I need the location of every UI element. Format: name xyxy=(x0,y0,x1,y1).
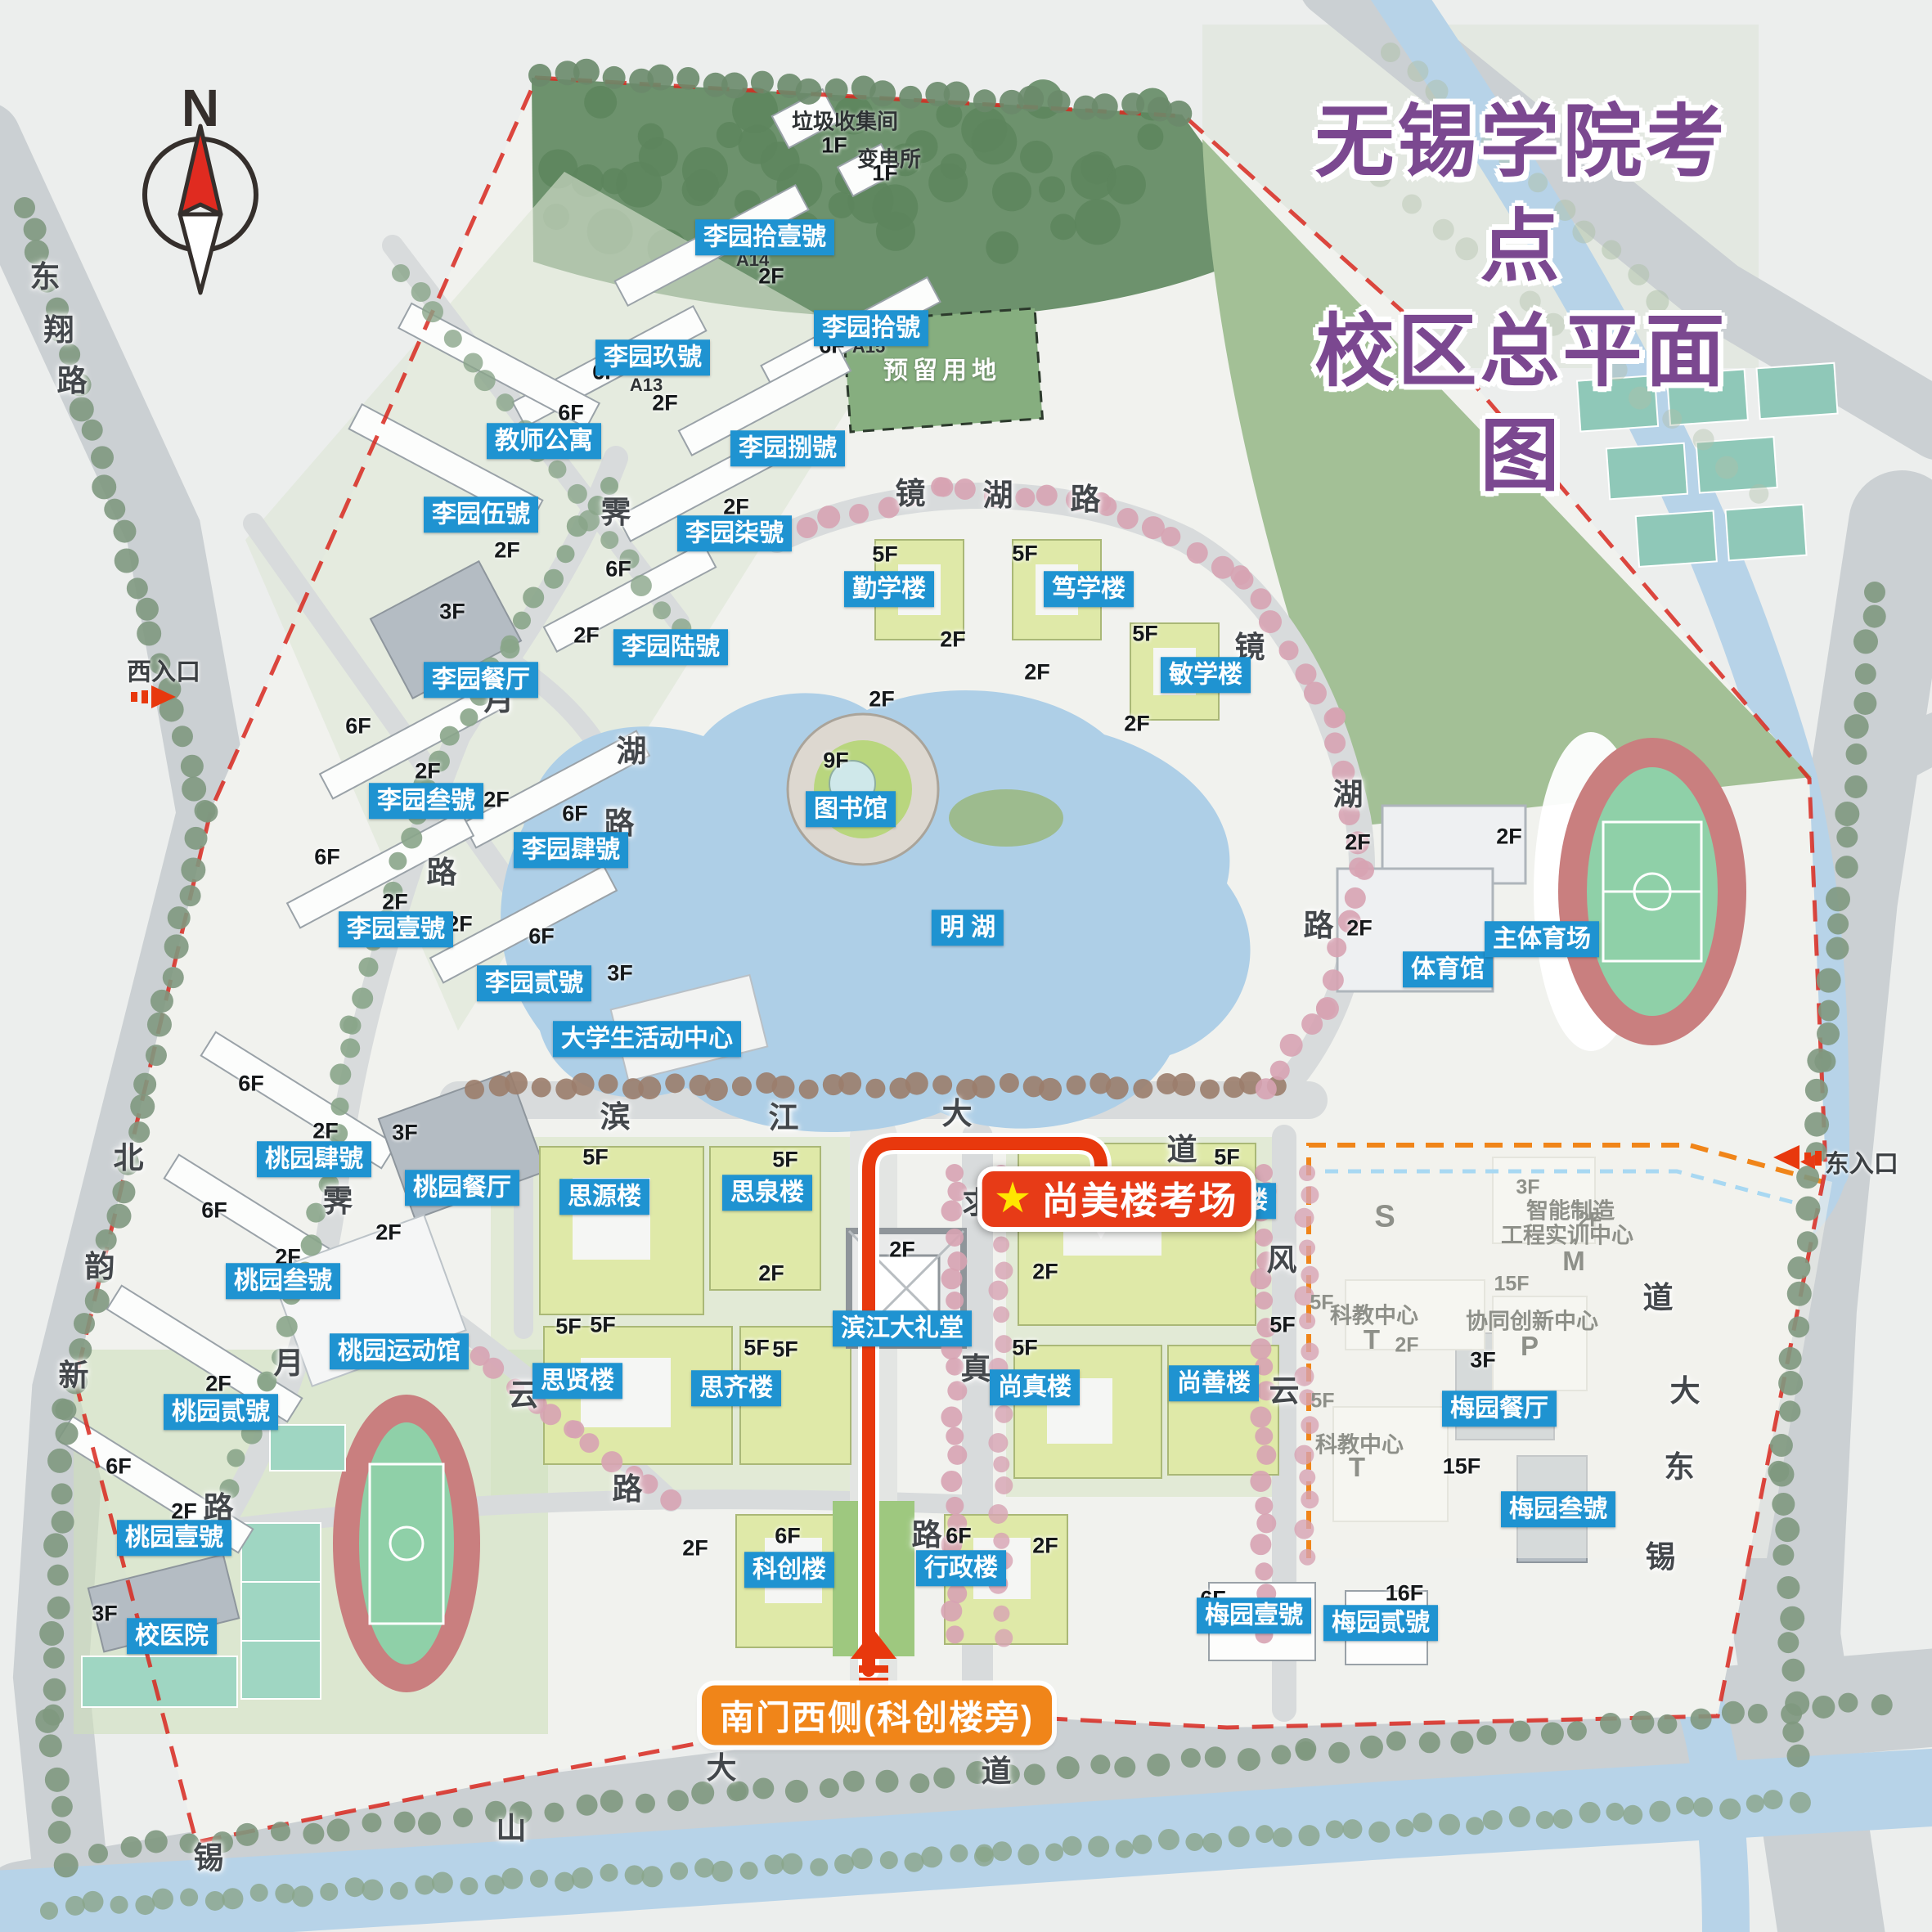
road-name-char: 湖 xyxy=(983,470,1013,514)
building-label: 桃园肆號 xyxy=(257,1141,371,1177)
floor-count-label: 6F xyxy=(558,401,584,426)
main-stadium xyxy=(1534,732,1746,1051)
road-name-char: 道 xyxy=(1167,1125,1197,1169)
building-label: 李园拾壹號 xyxy=(695,219,834,255)
south-gate-callout[interactable]: 南门西侧(科创楼旁) xyxy=(702,1686,1052,1746)
future-building-label: S xyxy=(1374,1200,1395,1235)
building-label: 尚善楼 xyxy=(1169,1365,1259,1401)
building-label: 李园伍號 xyxy=(424,496,538,532)
floor-count-label: 6F xyxy=(605,557,631,582)
floor-count-label: 2F xyxy=(573,623,600,649)
building-label: 梅园贰號 xyxy=(1323,1605,1438,1641)
floor-count-label: 2F xyxy=(415,759,441,784)
road-name-char: 东 xyxy=(30,252,61,296)
reserved-land-label: 预留用地 xyxy=(883,350,1001,386)
page-title: 无锡学院考点 校区总平面图 xyxy=(1276,90,1767,509)
road-name-char: 新 xyxy=(59,1350,89,1395)
exam-site-name: 尚美楼考场 xyxy=(1041,1171,1238,1225)
building-label: 李园肆號 xyxy=(514,832,628,868)
floor-count-label: 3F xyxy=(607,961,633,986)
floor-count-label: 5F xyxy=(872,542,898,568)
road-name-char: 北 xyxy=(114,1133,144,1177)
building-label: 桃园壹號 xyxy=(117,1520,231,1556)
floor-count-label: 6F xyxy=(562,802,588,827)
floor-count-label: 3F xyxy=(392,1121,418,1146)
road-name-char: 滨 xyxy=(600,1092,631,1136)
future-building-label: M xyxy=(1562,1246,1585,1277)
road-name-char: 路 xyxy=(1071,474,1101,519)
future-building-label: 5F xyxy=(1310,1292,1333,1315)
entrance-arrow-icon: ◄ xyxy=(1795,1148,1820,1175)
building-label: 李园陆號 xyxy=(613,629,728,665)
road-name-char: 大 xyxy=(942,1089,973,1133)
road-name-char: 真 xyxy=(961,1344,991,1388)
compass: N xyxy=(143,78,258,266)
floor-count-label: 16F xyxy=(1386,1581,1424,1606)
floor-count-label: 5F xyxy=(1132,622,1158,647)
floor-count-label: 2F xyxy=(652,391,678,416)
floor-count-label: 6F xyxy=(775,1524,801,1549)
road-name-char: 路 xyxy=(613,1464,643,1508)
building-label: 桃园餐厅 xyxy=(405,1170,519,1206)
floor-count-label: 6F xyxy=(238,1072,264,1097)
campus-map: N 无锡学院考点 校区总平面图 ★ 尚美楼考场 南门西侧(科创楼旁) 预留用地 … xyxy=(0,0,1932,1932)
road-name-char: 路 xyxy=(57,356,88,400)
building-label: 滨江大礼堂 xyxy=(833,1310,972,1346)
entrance-label[interactable]: ◄东入口 xyxy=(1795,1143,1898,1179)
road-name-char: 湖 xyxy=(617,726,647,771)
building-label: 行政楼 xyxy=(916,1550,1006,1586)
floor-count-label: 5F xyxy=(772,1337,798,1363)
road-name-char: 云 xyxy=(1269,1366,1300,1410)
building-label: 李园捌號 xyxy=(730,430,845,466)
floor-count-label: 2F xyxy=(1496,824,1522,850)
future-building-label: T xyxy=(1364,1324,1380,1355)
floor-count-label: 2F xyxy=(375,1220,402,1246)
building-label: 思贤楼 xyxy=(532,1363,622,1399)
floor-count-label: 5F xyxy=(744,1336,770,1361)
building-label: 体育馆 xyxy=(1403,951,1493,987)
building-label: 梅园餐厅 xyxy=(1442,1391,1557,1427)
road-name-char: 镜 xyxy=(896,469,926,513)
floor-count-label: 2F xyxy=(1124,712,1150,737)
floor-count-label: 5F xyxy=(1012,541,1038,567)
floor-count-label: 2F xyxy=(1024,660,1050,685)
building-label: 桃园贰號 xyxy=(164,1394,278,1430)
floor-count-label: 15F xyxy=(1443,1454,1481,1480)
star-icon: ★ xyxy=(994,1177,1032,1220)
road-name-char: 锡 xyxy=(194,1833,224,1877)
future-building-label: T xyxy=(1349,1452,1365,1483)
building-label: 思齐楼 xyxy=(691,1370,781,1406)
floor-count-label: 5F xyxy=(582,1145,609,1170)
building-label: 李园拾號 xyxy=(814,310,928,346)
road-name-char: 大 xyxy=(1670,1366,1701,1410)
building-label: 桃园叁號 xyxy=(226,1263,340,1299)
floor-count-label: 2F xyxy=(483,788,510,813)
floor-count-label: 2F xyxy=(1032,1534,1058,1559)
floor-count-label: 6F xyxy=(106,1454,132,1480)
road-name-char: 江 xyxy=(769,1093,799,1137)
building-label: 主体育场 xyxy=(1485,921,1599,957)
floor-count-label: 5F xyxy=(590,1313,616,1338)
building-label: 勤学楼 xyxy=(844,571,934,607)
building-label: 李园壹號 xyxy=(339,911,453,947)
road-name-char: 锡 xyxy=(1646,1532,1676,1576)
building-label: 思泉楼 xyxy=(722,1175,812,1211)
floor-count-label: 2F xyxy=(940,627,966,653)
lake-island xyxy=(949,789,1063,847)
road-name-char: 韵 xyxy=(85,1242,115,1286)
floor-count-label: 2F xyxy=(494,538,520,564)
road-name-char: 路 xyxy=(912,1510,942,1554)
floor-count-label: 5F xyxy=(1012,1336,1038,1361)
entrance-name: 东入口 xyxy=(1825,1143,1898,1179)
building-label: 教师公寓 xyxy=(487,423,601,459)
future-building-label: 2F xyxy=(1578,1209,1602,1233)
future-building-label: 工程实训中心 xyxy=(1501,1218,1633,1250)
library-building xyxy=(788,714,938,865)
building-label: 尚真楼 xyxy=(990,1369,1080,1405)
road-name-char: 路 xyxy=(427,847,457,892)
floor-count-label: 5F xyxy=(772,1148,798,1173)
building-label: 校医院 xyxy=(127,1618,217,1654)
floor-count-label: 5F xyxy=(1269,1313,1296,1338)
floor-count-label: 2F xyxy=(1032,1260,1058,1285)
compass-north-label: N xyxy=(182,78,219,138)
road-name-char: 霁 xyxy=(601,487,631,532)
facility-label: 垃圾收集间 xyxy=(792,106,898,136)
road-name-char: 路 xyxy=(1304,901,1334,945)
floor-count-label: 2F xyxy=(758,264,784,290)
floor-count-label: 9F xyxy=(823,748,849,774)
title-line-1: 无锡学院考点 xyxy=(1276,90,1767,299)
floor-count-label: 6F xyxy=(528,924,555,950)
building-label: 梅园壹號 xyxy=(1197,1597,1311,1633)
building-label: 李园餐厅 xyxy=(424,662,538,698)
road-name-char: 风 xyxy=(1267,1235,1297,1279)
floor-count-label: 6F xyxy=(314,845,340,870)
building-label: 李园贰號 xyxy=(477,965,591,1001)
road-name-char: 月 xyxy=(274,1338,304,1382)
building-label: 李园叁號 xyxy=(369,783,483,819)
floor-count-label: 6F xyxy=(345,714,371,739)
floor-count-label: 2F xyxy=(205,1372,231,1397)
floor-count-label: 2F xyxy=(758,1261,784,1287)
road-name-char: 大 xyxy=(707,1743,737,1787)
floor-count-label: 3F xyxy=(1470,1348,1496,1373)
floor-count-label: 2F xyxy=(869,687,895,712)
floor-count-label: 6F xyxy=(946,1524,972,1549)
building-label: 李园柒號 xyxy=(677,515,792,551)
road-name-char: 山 xyxy=(496,1804,527,1848)
road-name-char: 翔 xyxy=(44,305,74,349)
floor-count-label: 2F xyxy=(889,1238,915,1263)
building-label: 明 湖 xyxy=(932,910,1004,946)
road-name-char: 道 xyxy=(1643,1273,1674,1317)
future-building-label: 15F xyxy=(1494,1273,1529,1296)
building-label: 大学生活动中心 xyxy=(553,1021,741,1057)
floor-count-label: 2F xyxy=(312,1119,339,1144)
floor-count-label: 3F xyxy=(92,1602,118,1627)
building-label: 笃学楼 xyxy=(1044,571,1134,607)
floor-count-label: 1F xyxy=(821,133,847,159)
road-name-char: 霁 xyxy=(323,1176,353,1220)
floor-count-label: 5F xyxy=(555,1314,582,1340)
floor-count-label: 1F xyxy=(872,161,898,186)
building-label: 科创楼 xyxy=(744,1552,834,1588)
title-line-2: 校区总平面图 xyxy=(1276,299,1767,509)
road-name-char: 东 xyxy=(1665,1442,1695,1486)
west-track-field xyxy=(333,1395,480,1692)
building-label: 图书馆 xyxy=(806,791,896,827)
road-name-char: 湖 xyxy=(1333,770,1364,814)
building-label: 敏学楼 xyxy=(1161,657,1251,693)
future-building-label: P xyxy=(1521,1331,1539,1362)
floor-count-label: 6F xyxy=(201,1198,227,1224)
entrance-name: 西入口 xyxy=(127,659,200,685)
road-name-char: 道 xyxy=(982,1746,1012,1790)
entrance-label[interactable]: 西入口 xyxy=(127,659,200,685)
floor-count-label: 2F xyxy=(1345,830,1371,856)
building-label: 李园玖號 xyxy=(595,339,710,375)
building-label: 梅园叁號 xyxy=(1501,1491,1615,1527)
building-label: 桃园运动馆 xyxy=(330,1333,469,1369)
floor-count-label: 2F xyxy=(1346,916,1373,941)
future-building-label: 5F xyxy=(1310,1390,1334,1413)
floor-count-label: 2F xyxy=(682,1536,708,1561)
exam-site-callout[interactable]: ★ 尚美楼考场 xyxy=(977,1166,1256,1232)
future-building-label: 2F xyxy=(1395,1334,1418,1358)
floor-count-label: 3F xyxy=(439,600,465,625)
building-label: 思源楼 xyxy=(559,1179,649,1215)
future-building-label: 3F xyxy=(1516,1176,1539,1200)
